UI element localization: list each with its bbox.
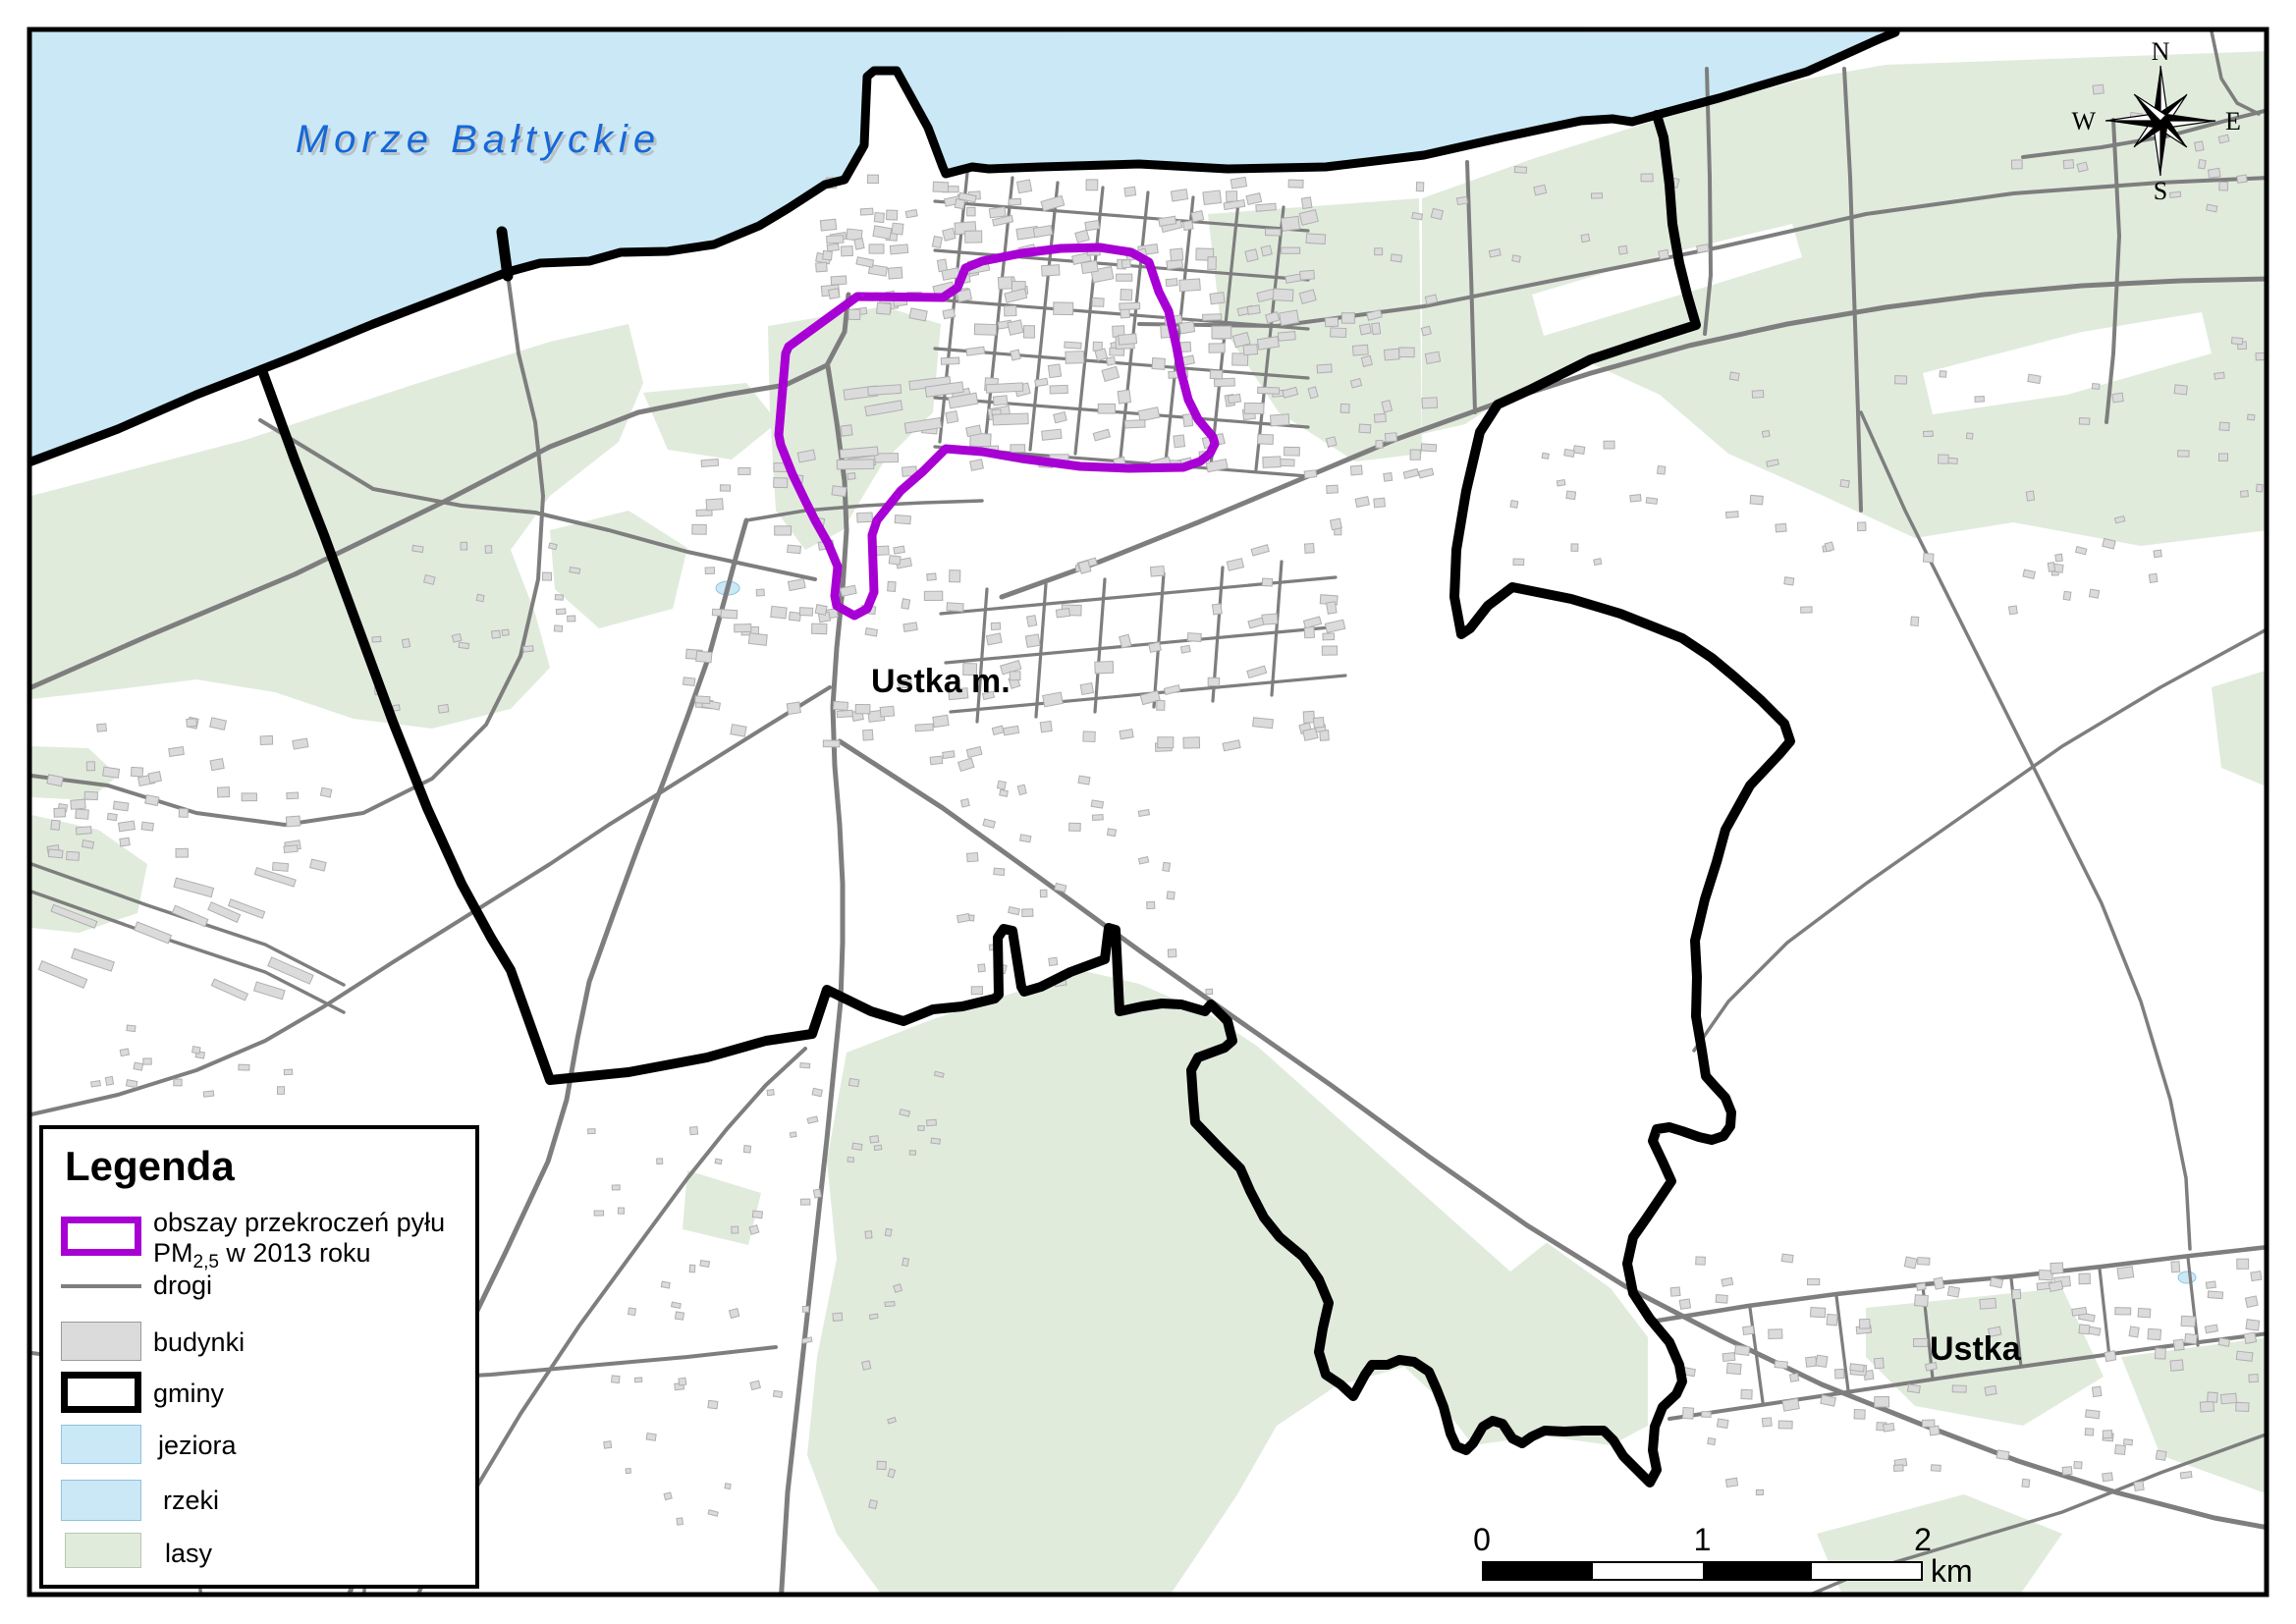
building (1630, 495, 1641, 503)
building (82, 840, 93, 849)
building (141, 822, 153, 831)
building (787, 702, 800, 715)
building (2200, 1401, 2214, 1412)
building (1092, 298, 1104, 306)
building (841, 246, 852, 256)
building (1966, 433, 1973, 439)
building (1893, 1465, 1903, 1472)
building (126, 1080, 137, 1088)
building (2220, 1393, 2236, 1404)
building (594, 1211, 604, 1216)
building (1119, 334, 1137, 345)
building (2171, 1262, 2180, 1272)
building (832, 486, 847, 497)
margin-mask (0, 0, 29, 1624)
building (756, 589, 764, 596)
building (877, 1461, 886, 1469)
building (76, 809, 89, 819)
building (1883, 1423, 1893, 1432)
building (1412, 212, 1423, 220)
building (320, 787, 331, 797)
building (812, 1088, 822, 1096)
building (1066, 352, 1084, 364)
building (2079, 1325, 2090, 1334)
building (1212, 326, 1231, 339)
building (870, 1136, 879, 1143)
building (748, 633, 767, 645)
building (933, 182, 949, 191)
building (1083, 731, 1095, 742)
legend-swatch-jeziora (61, 1425, 141, 1464)
building (1421, 444, 1436, 452)
building (1157, 701, 1165, 711)
building (203, 1091, 214, 1097)
legend-label-drogi: drogi (153, 1271, 212, 1301)
building (894, 1284, 902, 1293)
legend-swatch-drogi (61, 1284, 141, 1288)
margin-mask (0, 1595, 2296, 1624)
building (799, 608, 812, 616)
building (1187, 633, 1201, 642)
building (1542, 453, 1549, 459)
building (1808, 1278, 1820, 1284)
building (2173, 1339, 2184, 1350)
building (1208, 677, 1220, 685)
building (800, 1199, 809, 1205)
building (1372, 323, 1381, 335)
building (1049, 957, 1058, 965)
building (1304, 544, 1314, 554)
building (2105, 1351, 2116, 1362)
building (1990, 1277, 2002, 1288)
building (2148, 1328, 2161, 1339)
building (738, 467, 750, 474)
building (97, 724, 107, 731)
building (2256, 352, 2266, 359)
building (880, 706, 894, 717)
building (570, 568, 580, 574)
building (1722, 1353, 1735, 1362)
building (931, 1138, 941, 1144)
building (1245, 249, 1258, 262)
building (612, 1185, 620, 1190)
building (2129, 1326, 2139, 1337)
building (1327, 485, 1339, 493)
building (1564, 449, 1575, 457)
building (131, 767, 142, 777)
building (721, 610, 738, 619)
building (1374, 498, 1386, 508)
building (402, 639, 410, 648)
building (1947, 1286, 1959, 1297)
building (2103, 1473, 2113, 1482)
building (1017, 785, 1026, 794)
building (210, 759, 224, 771)
building (568, 616, 575, 622)
building (1258, 387, 1280, 394)
building (1752, 390, 1764, 398)
building (2237, 1259, 2249, 1269)
building (1138, 810, 1149, 817)
building (1782, 1398, 1799, 1411)
building (2149, 573, 2158, 582)
building (452, 633, 462, 642)
building (1022, 909, 1033, 917)
building (1702, 1411, 1712, 1417)
building (1210, 293, 1225, 304)
building (523, 646, 534, 652)
building (1247, 305, 1260, 315)
building (1054, 302, 1073, 315)
building (989, 207, 1006, 218)
building (865, 1231, 872, 1239)
building (885, 1228, 892, 1236)
legend-label-pm25-part: 2,5 (193, 1252, 219, 1272)
building (2246, 1320, 2260, 1330)
building (967, 853, 978, 862)
building (731, 725, 746, 736)
building (2112, 393, 2123, 403)
building (1121, 290, 1132, 301)
building (260, 735, 273, 744)
building (76, 827, 91, 835)
building (932, 237, 942, 248)
building (1168, 949, 1176, 957)
building (865, 628, 877, 636)
building (854, 239, 864, 250)
building (176, 848, 189, 857)
building (1769, 1329, 1782, 1339)
sea-label: Morze Bałtyckie (296, 118, 661, 161)
building (2011, 160, 2022, 169)
building (2050, 1263, 2063, 1273)
building (1120, 730, 1133, 739)
building (1781, 1254, 1793, 1263)
building (48, 849, 63, 858)
building (1152, 358, 1165, 370)
building (1048, 364, 1061, 378)
place-label: Ustka (1930, 1330, 2022, 1368)
building (1095, 349, 1108, 360)
building (743, 1146, 750, 1153)
building (1147, 901, 1155, 908)
building (2195, 141, 2205, 151)
building (695, 696, 710, 704)
building (1948, 458, 1958, 463)
building (2154, 550, 2161, 558)
building (1000, 789, 1009, 796)
building (705, 568, 715, 574)
building (1304, 470, 1317, 478)
building (863, 730, 873, 740)
building (994, 868, 1005, 875)
building (485, 546, 492, 554)
building (1975, 397, 1985, 403)
building (831, 276, 847, 285)
building (812, 623, 827, 634)
building (1179, 321, 1195, 333)
building (1340, 404, 1349, 412)
building (2219, 422, 2229, 431)
building (1717, 1419, 1728, 1429)
building (1431, 208, 1443, 219)
building (889, 556, 901, 565)
building (1924, 431, 1934, 437)
building (2178, 451, 2190, 457)
building (943, 228, 956, 241)
building (1078, 776, 1090, 785)
building (1120, 302, 1140, 309)
building (729, 1309, 738, 1319)
building (2245, 1296, 2258, 1308)
building (2218, 454, 2227, 460)
building (664, 1492, 672, 1500)
building (1416, 183, 1424, 191)
building (1776, 523, 1786, 532)
building (556, 609, 566, 615)
building (634, 1378, 642, 1382)
building (1646, 498, 1657, 505)
building (239, 1064, 249, 1070)
building (2214, 372, 2224, 379)
building (2092, 384, 2100, 390)
legend-swatch-rzeki (61, 1480, 141, 1521)
building (1594, 559, 1602, 566)
building (1301, 197, 1312, 209)
building (720, 485, 730, 491)
building (2244, 1332, 2256, 1343)
building (1835, 1369, 1844, 1379)
building (997, 781, 1006, 789)
building (1273, 289, 1293, 301)
building (855, 704, 870, 713)
building (1086, 180, 1098, 190)
building (1374, 413, 1386, 422)
building (1214, 378, 1234, 386)
building (823, 740, 840, 747)
building (1422, 398, 1438, 408)
building (618, 1208, 624, 1214)
building (1025, 634, 1040, 647)
building (1078, 561, 1090, 573)
building (689, 1265, 695, 1272)
building (1166, 279, 1177, 287)
margin-mask (2267, 0, 2296, 1624)
building (277, 1087, 284, 1095)
building (874, 212, 884, 222)
building (1243, 345, 1258, 355)
building (2218, 135, 2229, 143)
building (476, 594, 484, 602)
building (2012, 1289, 2021, 1299)
building (967, 207, 975, 216)
building (955, 199, 964, 209)
building (242, 793, 256, 801)
building (1985, 1385, 1996, 1395)
building (113, 801, 129, 811)
building (187, 719, 197, 728)
building (924, 591, 942, 600)
building (2079, 418, 2090, 425)
building (1421, 326, 1431, 336)
building (1261, 245, 1272, 256)
building (1895, 376, 1907, 384)
building (965, 231, 982, 243)
building (752, 1211, 762, 1218)
scale-tick-label: 2 (1914, 1522, 1932, 1558)
legend-label-pm25-part: PM (153, 1238, 193, 1268)
building (1708, 1437, 1716, 1444)
legend-swatch-lasy (65, 1533, 141, 1568)
legend-label-budynki: budynki (153, 1327, 245, 1358)
building (412, 545, 423, 552)
building (293, 738, 308, 749)
building (1581, 234, 1590, 242)
building (1278, 332, 1295, 342)
building (1350, 465, 1362, 475)
building (1326, 437, 1337, 447)
building (1080, 683, 1093, 695)
building (1228, 394, 1240, 403)
building (1011, 350, 1020, 360)
building (926, 1119, 936, 1125)
building (612, 1376, 620, 1383)
building (1384, 349, 1399, 360)
building (2123, 1439, 2132, 1445)
building (1149, 642, 1162, 653)
legend-label-pm25-line2: PM2,5 w 2013 roku (153, 1238, 445, 1273)
building (827, 244, 839, 251)
building (1682, 1407, 1693, 1419)
building (950, 570, 960, 582)
building (841, 425, 852, 436)
building (2079, 1273, 2090, 1284)
building (1725, 512, 1738, 518)
building (1762, 430, 1770, 437)
building (1591, 193, 1602, 198)
building (1385, 433, 1396, 442)
compass-label-w: W (2071, 107, 2096, 135)
building (1512, 255, 1521, 262)
building (677, 1518, 683, 1525)
building (833, 1313, 843, 1321)
building (1282, 247, 1300, 253)
building (1331, 328, 1346, 338)
building (732, 1226, 738, 1233)
building (700, 1261, 710, 1268)
building (148, 772, 161, 784)
building (1725, 1478, 1737, 1487)
building (1352, 345, 1368, 355)
building (1098, 404, 1115, 413)
building (2028, 374, 2041, 383)
building (1778, 1421, 1792, 1429)
building (2074, 1461, 2082, 1468)
building (869, 1500, 878, 1509)
building (1816, 1355, 1828, 1367)
building (492, 630, 501, 638)
building (1359, 324, 1371, 335)
building (1120, 634, 1131, 648)
building (823, 250, 833, 259)
building (672, 1302, 682, 1308)
building (1206, 989, 1213, 994)
building (1065, 342, 1081, 349)
building (2231, 337, 2242, 344)
building (555, 595, 563, 601)
building (2249, 1375, 2259, 1382)
building (2072, 1307, 2087, 1316)
building (725, 1484, 731, 1489)
building (2208, 1392, 2218, 1402)
building (1734, 1345, 1749, 1355)
building (903, 623, 917, 632)
building (1027, 616, 1037, 627)
building (1270, 414, 1288, 426)
building (2170, 1360, 2183, 1371)
building (689, 1127, 697, 1135)
building (2237, 175, 2247, 183)
building (1180, 645, 1190, 653)
building (120, 838, 130, 846)
building (1327, 602, 1337, 615)
building (1931, 1465, 1941, 1472)
building (771, 606, 787, 619)
building (287, 792, 299, 799)
building (1810, 1308, 1825, 1318)
building (2199, 160, 2207, 169)
building (461, 542, 467, 550)
building (2009, 606, 2018, 615)
building (1939, 455, 1949, 463)
building (1180, 342, 1191, 352)
building (1743, 1326, 1755, 1334)
building (1262, 614, 1278, 624)
building (1741, 1389, 1752, 1399)
building (2055, 554, 2063, 562)
building (1304, 626, 1314, 637)
building (1263, 457, 1281, 467)
building (978, 964, 986, 972)
building (930, 756, 943, 765)
building (974, 324, 996, 335)
building (1118, 390, 1130, 404)
building (895, 515, 910, 524)
building (1756, 1489, 1763, 1494)
building (692, 524, 706, 534)
building (2240, 491, 2248, 498)
building (800, 1063, 810, 1068)
building (1854, 1410, 1865, 1420)
building (715, 1159, 722, 1164)
building (1784, 577, 1794, 585)
building (1534, 185, 1547, 195)
building (960, 799, 969, 807)
building (1258, 434, 1274, 444)
building (706, 499, 723, 511)
building (735, 624, 751, 632)
building (1183, 737, 1200, 748)
building (2063, 160, 2074, 169)
building (2257, 484, 2264, 492)
building (1726, 1363, 1741, 1374)
building (372, 636, 381, 642)
building (1191, 211, 1204, 222)
building (1208, 257, 1217, 270)
building (1121, 259, 1130, 267)
building (1915, 1295, 1929, 1307)
building (272, 862, 288, 871)
